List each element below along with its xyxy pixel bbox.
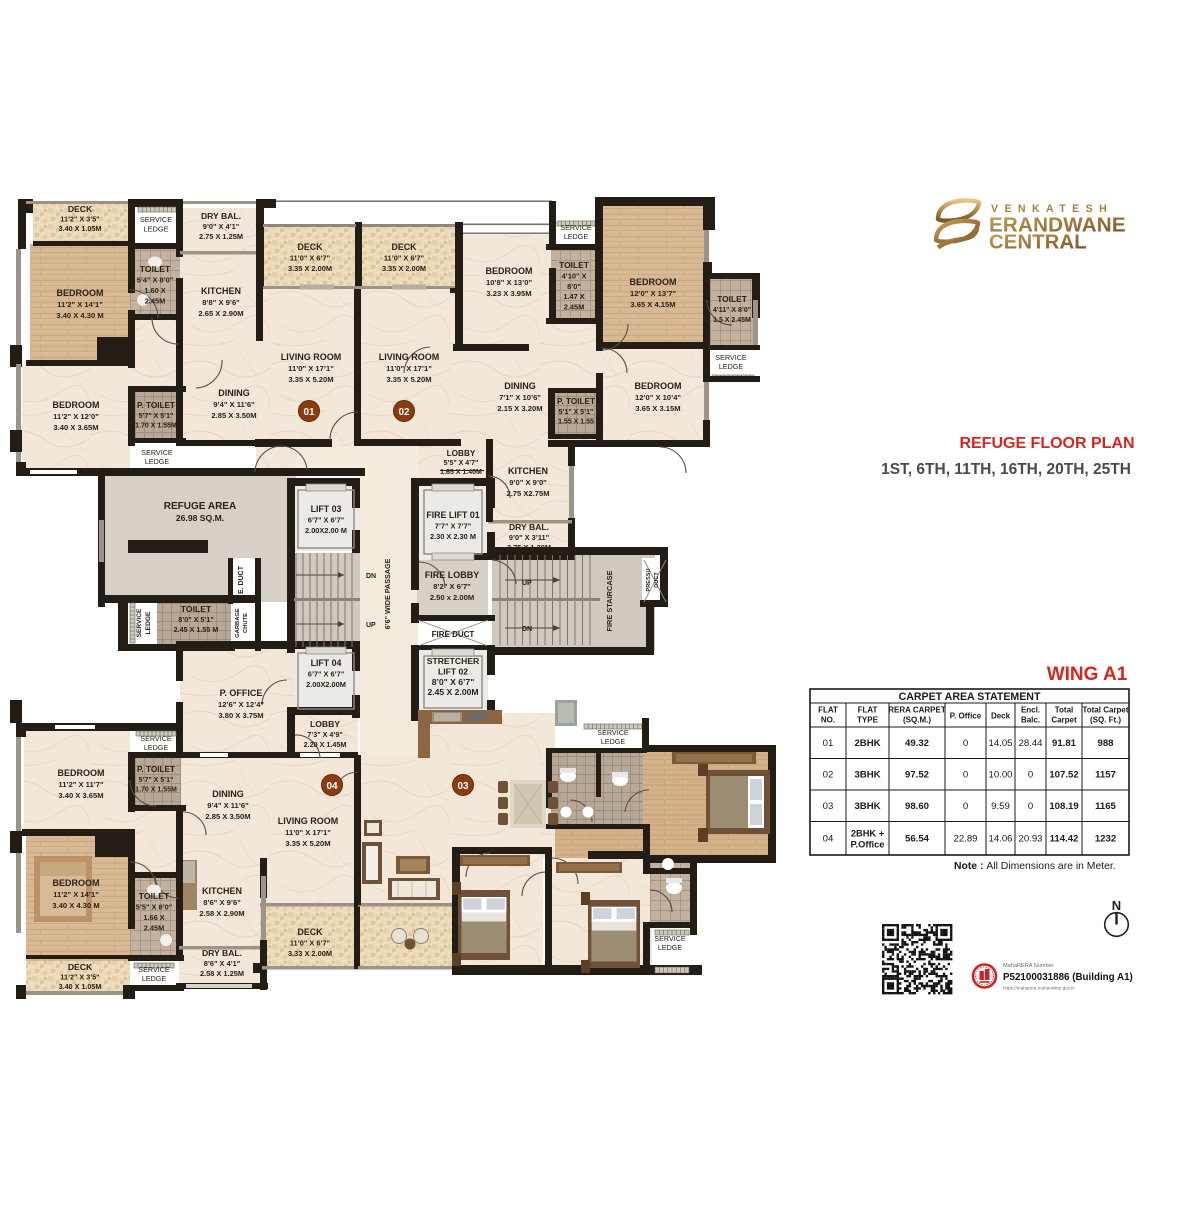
svg-text:DN: DN — [366, 573, 376, 580]
svg-text:3.35 X 5.20M: 3.35 X 5.20M — [288, 375, 333, 384]
svg-text:LEDGE: LEDGE — [658, 943, 683, 952]
svg-text:9’4" X 11’6": 9’4" X 11’6" — [207, 801, 249, 810]
svg-text:1157: 1157 — [1095, 769, 1116, 780]
svg-text:LIVING ROOM: LIVING ROOM — [281, 352, 342, 362]
svg-text:2.00X2.00M: 2.00X2.00M — [306, 680, 346, 689]
svg-text:0: 0 — [963, 801, 968, 812]
svg-text:Total: Total — [1055, 706, 1074, 715]
svg-text:BEDROOM: BEDROOM — [58, 768, 105, 778]
svg-text:BEDROOM: BEDROOM — [53, 878, 100, 888]
svg-text:SERVICE: SERVICE — [140, 215, 172, 224]
svg-text:UP: UP — [522, 580, 532, 587]
svg-text:2.50 x 2.00M: 2.50 x 2.00M — [430, 593, 474, 602]
svg-text:CENTRAL: CENTRAL — [989, 232, 1087, 254]
svg-text:9’0" X 3’11": 9’0" X 3’11" — [509, 533, 550, 542]
svg-text:02: 02 — [823, 769, 834, 780]
svg-text:Encl.: Encl. — [1021, 706, 1040, 715]
svg-text:0: 0 — [963, 769, 968, 780]
svg-text:BEDROOM: BEDROOM — [57, 288, 104, 298]
svg-text:9’0" X 9’0": 9’0" X 9’0" — [509, 478, 547, 487]
svg-text:3.40 X 3.65M: 3.40 X 3.65M — [58, 791, 103, 800]
svg-text:2BHK: 2BHK — [854, 738, 880, 749]
svg-text:108.19: 108.19 — [1049, 801, 1078, 812]
svg-text:LEDGE: LEDGE — [719, 362, 744, 371]
svg-text:2.45M: 2.45M — [145, 297, 166, 306]
svg-text:12’6" X 12’4": 12’6" X 12’4" — [218, 700, 264, 709]
svg-text:TOILET: TOILET — [139, 891, 170, 901]
svg-text:UP: UP — [366, 622, 376, 629]
svg-text:3.40 X 1.05M: 3.40 X 1.05M — [59, 982, 102, 991]
svg-text:Note : All Dimensions are in M: Note : All Dimensions are in Meter. — [954, 861, 1116, 872]
svg-text:5’5" X 4’7": 5’5" X 4’7" — [444, 460, 479, 467]
svg-text:8’0" X 6’7": 8’0" X 6’7" — [432, 677, 475, 687]
svg-text:P. TOILET: P. TOILET — [137, 765, 175, 774]
svg-text:SERVICE: SERVICE — [138, 965, 170, 974]
svg-text:11’0" X 6’7": 11’0" X 6’7" — [384, 254, 425, 263]
svg-text:12’0" X 13’7": 12’0" X 13’7" — [630, 289, 676, 298]
svg-text:3.40 X 1.05M: 3.40 X 1.05M — [59, 224, 102, 233]
svg-text:BEDROOM: BEDROOM — [635, 381, 682, 391]
svg-text:11’0" X 6’7": 11’0" X 6’7" — [290, 254, 331, 263]
svg-text:2BHK +: 2BHK + — [851, 828, 885, 838]
svg-text:26.98 SQ.M.: 26.98 SQ.M. — [176, 513, 224, 523]
svg-text:LEDGE: LEDGE — [144, 743, 169, 752]
svg-text:91.81: 91.81 — [1052, 738, 1077, 749]
svg-text:3.40 X 3.65M: 3.40 X 3.65M — [53, 423, 98, 432]
svg-text:DRY BAL.: DRY BAL. — [201, 211, 241, 221]
svg-text:1165: 1165 — [1095, 801, 1116, 812]
svg-text:LEDGE: LEDGE — [142, 974, 167, 983]
svg-text:DECK: DECK — [68, 962, 93, 972]
svg-text:Total Carpet: Total Carpet — [1082, 706, 1128, 715]
svg-text:DECK: DECK — [392, 242, 418, 252]
svg-text:8’6" X 4’1": 8’6" X 4’1" — [204, 959, 241, 968]
svg-text:3.65 X 3.15M: 3.65 X 3.15M — [635, 404, 680, 413]
svg-text:DRY BAL.: DRY BAL. — [202, 948, 242, 958]
svg-text:3.65 X 4.15M: 3.65 X 4.15M — [630, 300, 675, 309]
svg-text:10.00: 10.00 — [988, 769, 1012, 780]
svg-text:DUCT: DUCT — [654, 572, 660, 588]
svg-text:P. TOILET: P. TOILET — [137, 401, 175, 410]
svg-text:2.45M: 2.45M — [144, 924, 165, 933]
svg-text:12’0" X 10’4": 12’0" X 10’4" — [635, 393, 681, 402]
svg-text:REFUGE AREA: REFUGE AREA — [164, 501, 236, 512]
svg-text:BEDROOM: BEDROOM — [486, 266, 533, 276]
svg-text:11’0" X 6’7": 11’0" X 6’7" — [290, 939, 331, 948]
svg-text:0: 0 — [1028, 801, 1033, 812]
svg-text:FLAT: FLAT — [818, 706, 838, 715]
svg-text:7’1" X 10’6": 7’1" X 10’6" — [499, 393, 541, 402]
svg-text:DECK: DECK — [68, 204, 93, 214]
svg-text:SERVICE: SERVICE — [141, 448, 173, 457]
svg-text:5’1" X 5’1": 5’1" X 5’1" — [559, 409, 594, 416]
svg-text:11’2" X 14’1": 11’2" X 14’1" — [53, 890, 99, 899]
svg-text:2.75 X2.75M: 2.75 X2.75M — [506, 489, 549, 498]
svg-text:https://maharera.mahaonline.go: https://maharera.mahaonline.gov.in — [1003, 986, 1075, 991]
svg-text:DINING: DINING — [218, 388, 250, 398]
svg-text:P. Office: P. Office — [950, 712, 982, 721]
svg-text:7’3" X 4’9": 7’3" X 4’9" — [307, 730, 343, 739]
svg-text:2.85 X 3.50M: 2.85 X 3.50M — [211, 411, 256, 420]
svg-text:FIRE STAIRCASE: FIRE STAIRCASE — [605, 570, 614, 631]
svg-text:5’5" X 8’0": 5’5" X 8’0" — [136, 903, 173, 912]
svg-text:SERVICE: SERVICE — [136, 608, 143, 637]
svg-text:LIFT 04: LIFT 04 — [311, 658, 342, 668]
svg-text:DINING: DINING — [504, 381, 536, 391]
svg-text:56.54: 56.54 — [905, 833, 930, 844]
svg-text:Carpet: Carpet — [1051, 716, 1077, 725]
svg-text:2.00X2.00 M: 2.00X2.00 M — [305, 526, 347, 535]
svg-text:P. TOILET: P. TOILET — [557, 397, 595, 406]
svg-text:107.52: 107.52 — [1049, 769, 1078, 780]
svg-text:3.40 X 4.30 M: 3.40 X 4.30 M — [52, 901, 99, 910]
svg-text:SERVICE: SERVICE — [654, 934, 686, 943]
svg-text:PRESSU: PRESSU — [646, 568, 652, 591]
svg-text:14.06: 14.06 — [988, 833, 1012, 844]
svg-text:97.52: 97.52 — [905, 769, 929, 780]
svg-text:REFUGE FLOOR PLAN: REFUGE FLOOR PLAN — [959, 435, 1134, 452]
svg-text:1.5 X 2.45M: 1.5 X 2.45M — [713, 317, 751, 324]
svg-text:98.60: 98.60 — [905, 801, 929, 812]
svg-text:6’7" X 6’7": 6’7" X 6’7" — [308, 516, 345, 525]
svg-text:9’4" X 11’6": 9’4" X 11’6" — [213, 400, 255, 409]
svg-text:KITCHEN: KITCHEN — [201, 286, 241, 296]
svg-text:LEDGE: LEDGE — [564, 232, 589, 241]
svg-text:0: 0 — [963, 738, 968, 749]
svg-text:TYPE: TYPE — [857, 716, 879, 725]
svg-text:114.42: 114.42 — [1050, 833, 1079, 844]
svg-text:11’2" X 3’5": 11’2" X 3’5" — [60, 973, 99, 982]
svg-text:LIVING ROOM: LIVING ROOM — [379, 352, 440, 362]
svg-text:LIFT 03: LIFT 03 — [311, 504, 342, 514]
svg-text:28.44: 28.44 — [1018, 738, 1043, 749]
svg-text:1.66 X: 1.66 X — [143, 913, 164, 922]
svg-text:TOILET: TOILET — [181, 604, 212, 614]
svg-text:TOILET: TOILET — [559, 260, 590, 270]
svg-text:SERVICE: SERVICE — [597, 728, 629, 737]
svg-text:2.75 X 1.25M: 2.75 X 1.25M — [199, 232, 243, 241]
svg-text:10’8" X 13’0": 10’8" X 13’0" — [486, 278, 532, 287]
svg-text:(SQ.M.): (SQ.M.) — [903, 716, 931, 725]
svg-text:CHUTE: CHUTE — [243, 613, 249, 633]
svg-text:FIRE DUCT: FIRE DUCT — [432, 630, 475, 639]
svg-text:FLAT: FLAT — [858, 706, 878, 715]
svg-text:5’7" X 5’1": 5’7" X 5’1" — [139, 777, 174, 784]
svg-text:2.75 X 1.20M: 2.75 X 1.20M — [507, 543, 551, 552]
svg-text:P52100031886 (Building A1): P52100031886 (Building A1) — [1003, 972, 1133, 983]
svg-text:9.59: 9.59 — [991, 801, 1010, 812]
svg-text:11’0" X 17’1": 11’0" X 17’1" — [285, 828, 331, 837]
svg-text:1ST, 6TH, 11TH, 16TH, 20TH, 25: 1ST, 6TH, 11TH, 16TH, 20TH, 25TH — [881, 461, 1131, 478]
svg-text:4’11" X 8’0": 4’11" X 8’0" — [713, 307, 751, 314]
svg-text:11’2" X 12’0": 11’2" X 12’0" — [53, 412, 99, 421]
svg-text:Balc.: Balc. — [1021, 716, 1040, 725]
svg-text:04: 04 — [823, 833, 834, 844]
svg-text:LIVING ROOM: LIVING ROOM — [278, 816, 339, 826]
svg-text:8’8" X 9’6": 8’8" X 9’6" — [202, 298, 240, 307]
svg-text:LOBBY: LOBBY — [310, 719, 340, 729]
svg-text:STRETCHER: STRETCHER — [427, 656, 480, 666]
svg-text:RERA CARPET: RERA CARPET — [888, 706, 946, 715]
svg-text:14.05: 14.05 — [988, 738, 1012, 749]
svg-text:20.93: 20.93 — [1018, 833, 1042, 844]
svg-text:TOILET: TOILET — [717, 294, 748, 304]
svg-text:3.23 X 3.95M: 3.23 X 3.95M — [486, 289, 531, 298]
svg-text:7’7" X 7’7": 7’7" X 7’7" — [435, 522, 472, 531]
svg-text:11’2" X 14’1": 11’2" X 14’1" — [57, 300, 103, 309]
svg-text:BEDROOM: BEDROOM — [630, 277, 677, 287]
svg-text:BEDROOM: BEDROOM — [53, 400, 100, 410]
svg-text:2.45 X 2.00M: 2.45 X 2.00M — [427, 687, 478, 697]
svg-text:1.55 X 1.55: 1.55 X 1.55 — [558, 419, 594, 426]
svg-text:LEDGE: LEDGE — [145, 457, 170, 466]
svg-text:2.45M: 2.45M — [564, 303, 585, 312]
svg-text:FIRE LIFT 01: FIRE LIFT 01 — [426, 510, 479, 520]
svg-text:03: 03 — [457, 781, 469, 792]
svg-text:1232: 1232 — [1095, 833, 1116, 844]
svg-text:LIFT 02: LIFT 02 — [438, 666, 468, 676]
svg-text:8’0" X 5’1": 8’0" X 5’1" — [178, 615, 214, 624]
svg-text:3BHK: 3BHK — [854, 801, 880, 812]
svg-text:TOILET: TOILET — [140, 264, 171, 274]
svg-text:3.35 X 5.20M: 3.35 X 5.20M — [386, 375, 431, 384]
svg-text:11’0" X 17’1": 11’0" X 17’1" — [386, 364, 432, 373]
svg-text:1.47 X: 1.47 X — [563, 292, 584, 301]
svg-text:2.58 X 1.25M: 2.58 X 1.25M — [200, 969, 244, 978]
svg-text:3.35 X 5.20M: 3.35 X 5.20M — [285, 839, 330, 848]
svg-text:DECK: DECK — [298, 242, 324, 252]
svg-text:1.60 X: 1.60 X — [144, 286, 165, 295]
svg-text:3.35 X 2.00M: 3.35 X 2.00M — [382, 264, 426, 273]
svg-text:N: N — [1112, 898, 1121, 913]
svg-text:01: 01 — [823, 738, 834, 749]
svg-text:SERVICE: SERVICE — [140, 734, 172, 743]
svg-text:LOBBY: LOBBY — [447, 449, 476, 458]
svg-text:FIRE LOBBY: FIRE LOBBY — [425, 570, 480, 580]
svg-text:DINING: DINING — [212, 789, 244, 799]
svg-text:3.40 X 4.30 M: 3.40 X 4.30 M — [56, 311, 103, 320]
svg-text:DECK: DECK — [298, 927, 324, 937]
svg-text:9’0" X 4’1": 9’0" X 4’1" — [203, 222, 240, 231]
svg-text:MahaRERA Number: MahaRERA Number — [1003, 963, 1054, 969]
svg-text:CARPET AREA STATEMENT: CARPET AREA STATEMENT — [899, 691, 1041, 703]
svg-text:SERVICE: SERVICE — [715, 353, 747, 362]
svg-text:3.35 X 2.00M: 3.35 X 2.00M — [288, 264, 332, 273]
svg-text:8’2" X 6’7": 8’2" X 6’7" — [433, 582, 471, 591]
svg-text:22.89: 22.89 — [953, 833, 977, 844]
svg-text:11’2" X 11’7": 11’2" X 11’7" — [58, 780, 104, 789]
svg-text:6’6" WIDE PASSAGE: 6’6" WIDE PASSAGE — [383, 558, 392, 629]
svg-text:2.58 X 2.90M: 2.58 X 2.90M — [199, 909, 244, 918]
svg-text:NO.: NO. — [821, 716, 835, 725]
svg-text:5’4" X 8’0": 5’4" X 8’0" — [137, 276, 174, 285]
svg-text:KITCHEN: KITCHEN — [508, 466, 548, 476]
svg-text:11’0" X 17’1": 11’0" X 17’1" — [288, 364, 334, 373]
svg-text:Deck: Deck — [991, 712, 1011, 721]
svg-text:SERVICE: SERVICE — [560, 223, 592, 232]
svg-text:2.15 X 3.20M: 2.15 X 3.20M — [497, 404, 542, 413]
svg-text:1.70 X 1.55M: 1.70 X 1.55M — [135, 423, 177, 430]
svg-text:4’10" X: 4’10" X — [562, 271, 587, 280]
svg-text:11’2" X 3’5": 11’2" X 3’5" — [60, 215, 99, 224]
svg-text:2.45 X 1.55 M: 2.45 X 1.55 M — [174, 625, 219, 634]
svg-text:988: 988 — [1097, 738, 1114, 749]
svg-text:GARBAGE: GARBAGE — [235, 608, 241, 638]
svg-text:3.33 X 2.00M: 3.33 X 2.00M — [288, 949, 332, 958]
svg-text:P.Office: P.Office — [851, 839, 885, 849]
svg-text:WING A1: WING A1 — [1047, 664, 1128, 685]
svg-text:03: 03 — [823, 801, 834, 812]
svg-text:6’7" X 6’7": 6’7" X 6’7" — [308, 670, 345, 679]
svg-text:8’0": 8’0" — [567, 282, 581, 291]
svg-text:49.32: 49.32 — [905, 738, 929, 749]
svg-text:2.20 X 1.45M: 2.20 X 1.45M — [304, 740, 347, 749]
svg-text:DRY BAL.: DRY BAL. — [509, 522, 549, 532]
svg-text:KITCHEN: KITCHEN — [202, 886, 242, 896]
svg-text:8’6" X 9’6": 8’6" X 9’6" — [203, 898, 241, 907]
svg-text:3.80 X 3.75M: 3.80 X 3.75M — [218, 711, 263, 720]
svg-text:3BHK: 3BHK — [854, 769, 880, 780]
svg-text:2.85 X 3.50M: 2.85 X 3.50M — [205, 812, 250, 821]
svg-text:LEDGE: LEDGE — [145, 611, 152, 634]
svg-text:LEDGE: LEDGE — [601, 737, 626, 746]
svg-text:DN: DN — [522, 626, 532, 633]
svg-text:E. DUCT: E. DUCT — [238, 565, 245, 594]
svg-text:P. OFFICE: P. OFFICE — [220, 688, 263, 698]
svg-text:04: 04 — [326, 781, 338, 792]
svg-text:5’7" X 5’1": 5’7" X 5’1" — [139, 413, 174, 420]
svg-text:1.70 X 1.55M: 1.70 X 1.55M — [135, 787, 177, 794]
svg-text:2.30 X 2.30 M: 2.30 X 2.30 M — [430, 532, 476, 541]
svg-text:01: 01 — [303, 407, 315, 418]
svg-text:0: 0 — [1028, 769, 1033, 780]
svg-text:(SQ. Ft.): (SQ. Ft.) — [1090, 716, 1121, 725]
svg-text:2.65 X 2.90M: 2.65 X 2.90M — [198, 309, 243, 318]
svg-text:LEDGE: LEDGE — [143, 224, 168, 233]
svg-text:02: 02 — [398, 407, 410, 418]
